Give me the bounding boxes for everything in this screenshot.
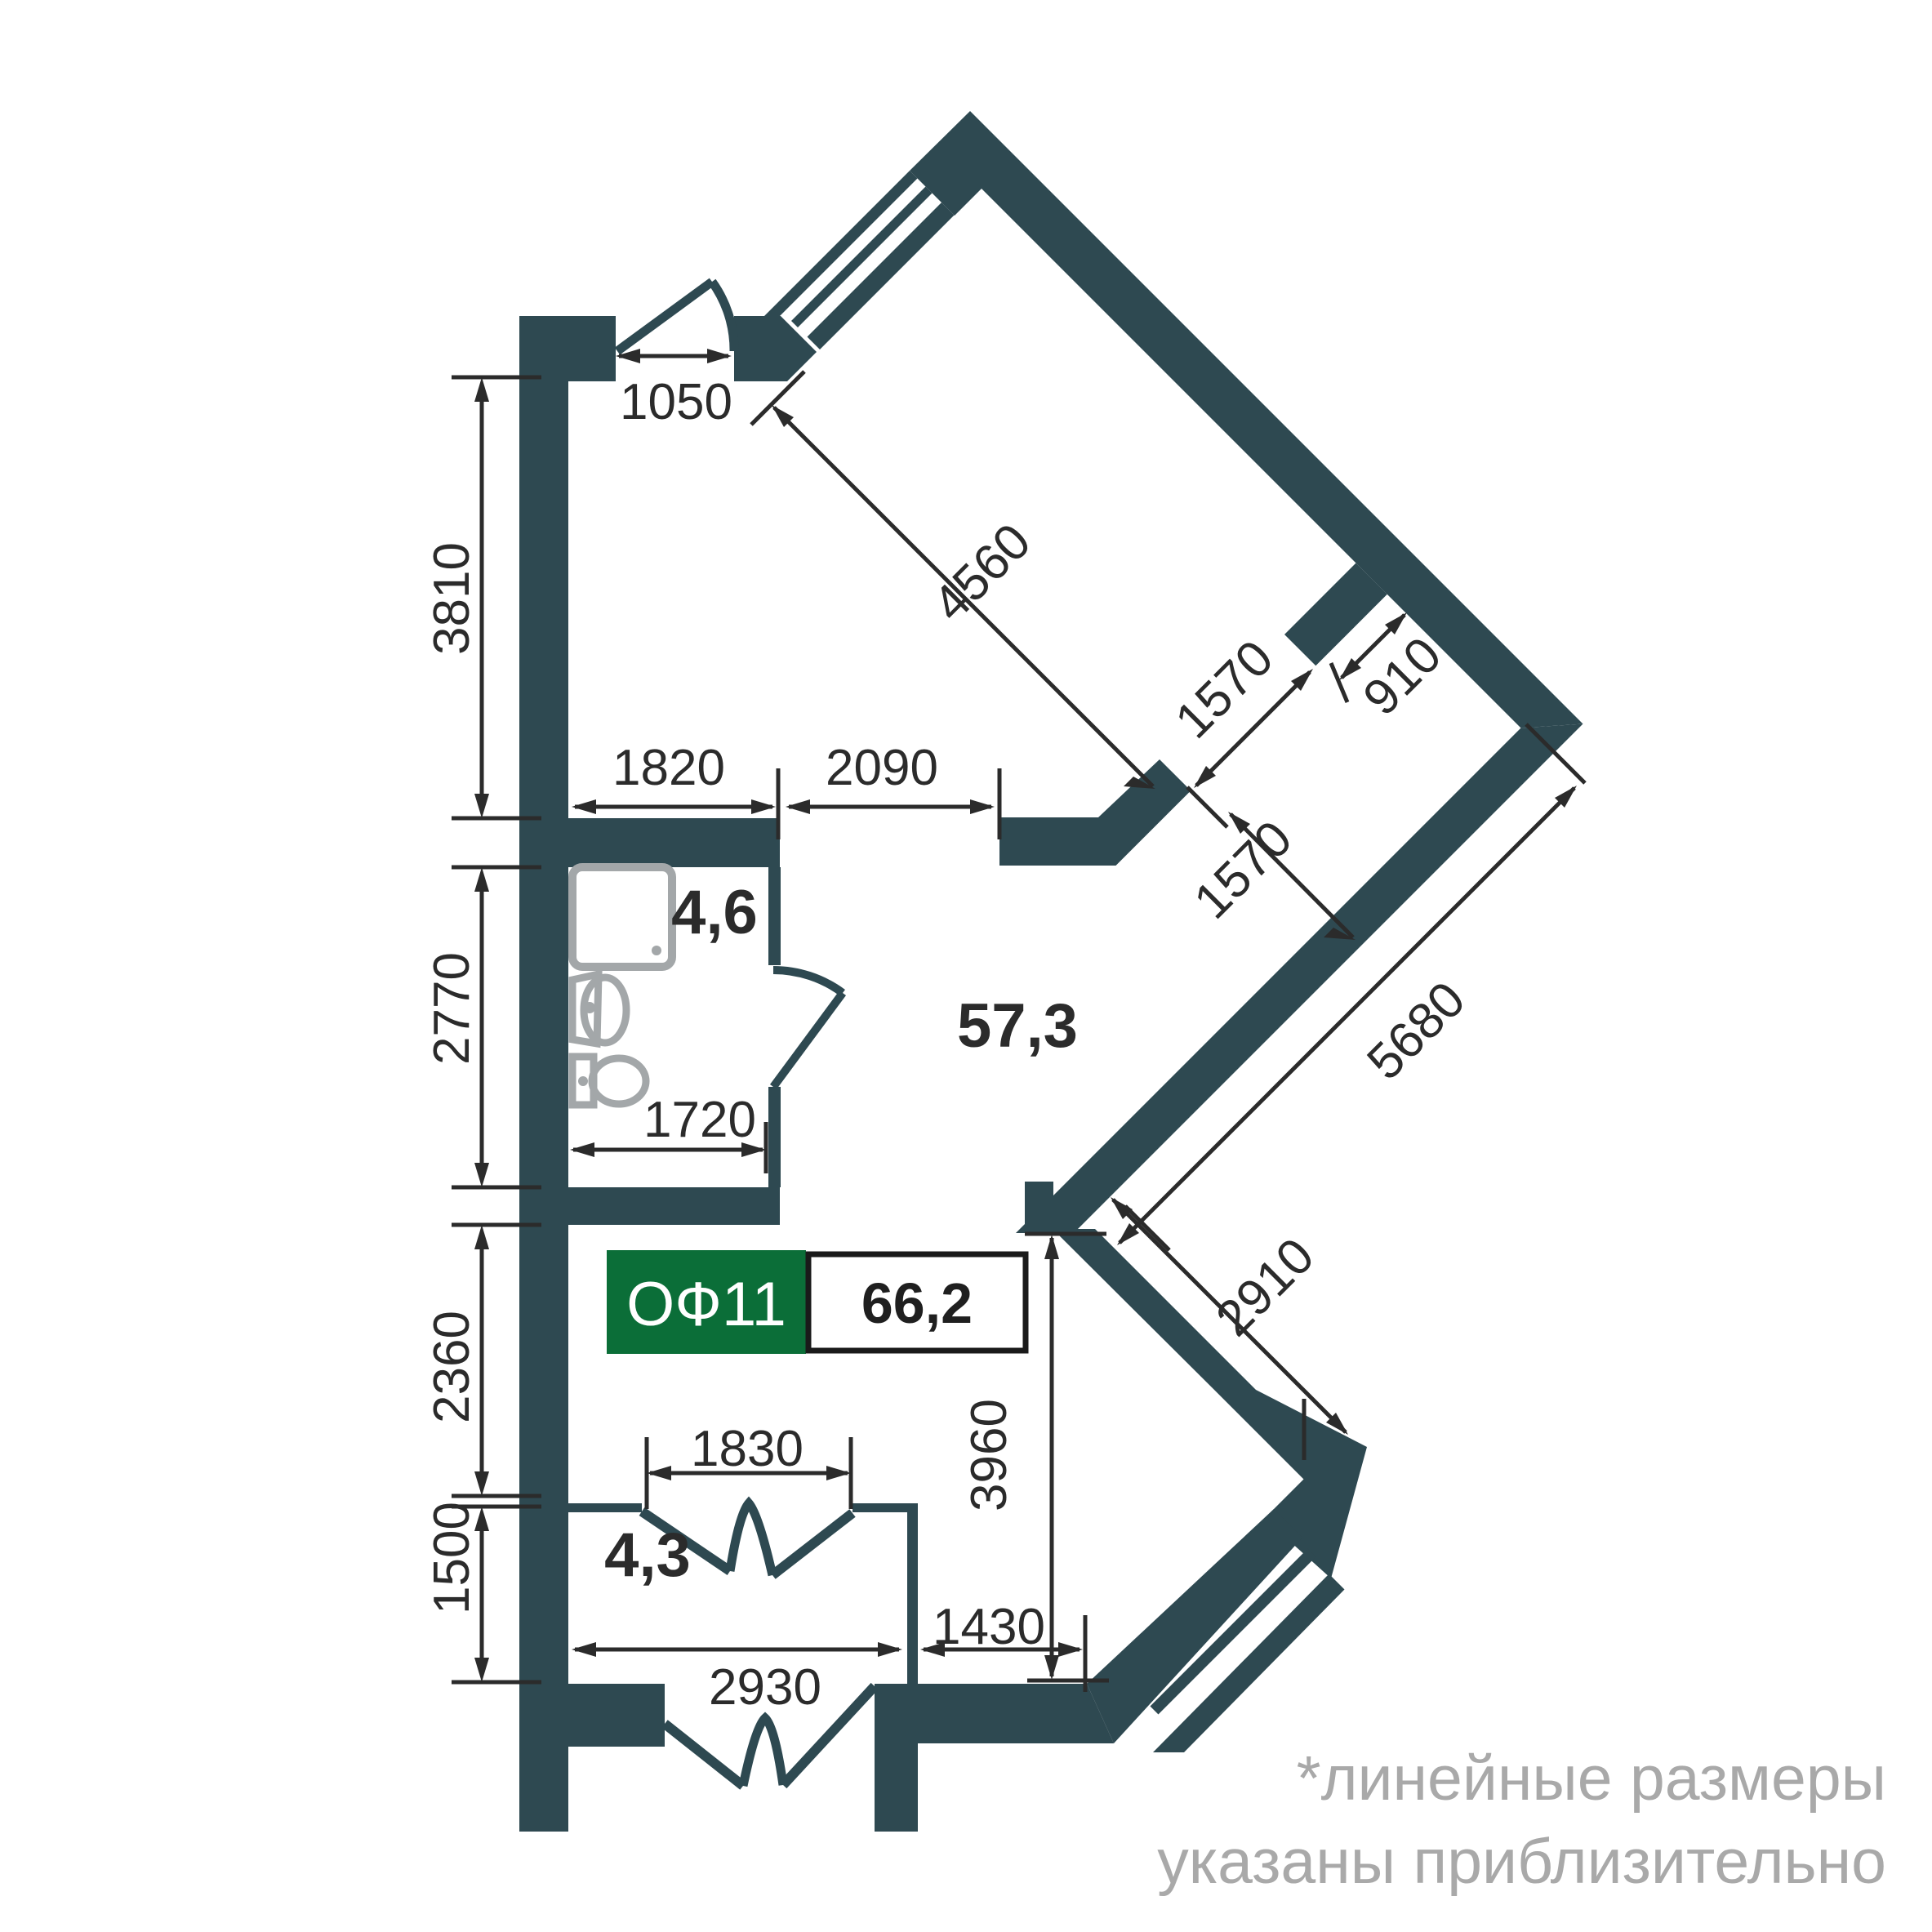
svg-text:2090: 2090 xyxy=(826,740,938,796)
svg-text:2770: 2770 xyxy=(424,952,480,1065)
svg-text:57,3: 57,3 xyxy=(957,991,1078,1061)
svg-text:1820: 1820 xyxy=(612,740,725,796)
svg-text:1050: 1050 xyxy=(620,374,732,430)
svg-text:1720: 1720 xyxy=(643,1092,756,1148)
svg-text:2360: 2360 xyxy=(424,1311,480,1423)
svg-text:указаны приблизительно: указаны приблизительно xyxy=(1157,1827,1886,1897)
svg-text:1500: 1500 xyxy=(424,1502,480,1614)
svg-text:3810: 3810 xyxy=(424,542,480,655)
svg-text:4,3: 4,3 xyxy=(604,1520,691,1590)
svg-text:66,2: 66,2 xyxy=(861,1271,973,1335)
svg-text:2930: 2930 xyxy=(709,1659,821,1716)
svg-text:4,6: 4,6 xyxy=(671,878,758,947)
svg-text:1830: 1830 xyxy=(691,1421,804,1477)
svg-text:*линейные размеры: *линейные размеры xyxy=(1297,1743,1886,1814)
svg-text:ОФ11: ОФ11 xyxy=(626,1270,786,1339)
svg-text:1430: 1430 xyxy=(933,1599,1045,1655)
svg-text:3960: 3960 xyxy=(961,1399,1017,1511)
